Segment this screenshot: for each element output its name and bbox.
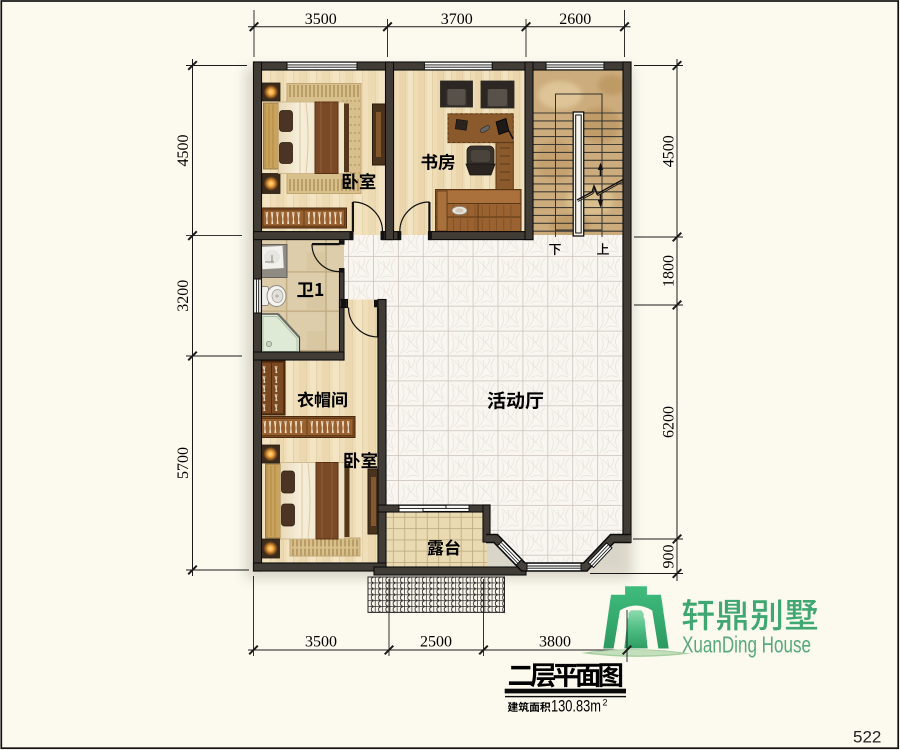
svg-text:3800: 3800 <box>539 633 571 650</box>
svg-text:2600: 2600 <box>559 11 591 28</box>
svg-text:2500: 2500 <box>420 633 452 650</box>
svg-text:900: 900 <box>661 545 678 569</box>
svg-text:3500: 3500 <box>305 11 337 28</box>
svg-text:3700: 3700 <box>441 11 473 28</box>
svg-text:5700: 5700 <box>175 447 192 479</box>
svg-text:522: 522 <box>853 728 881 747</box>
svg-text:XuanDing House: XuanDing House <box>682 632 811 658</box>
svg-text:3500: 3500 <box>305 633 337 650</box>
svg-text:4500: 4500 <box>661 135 678 167</box>
svg-text:4500: 4500 <box>175 135 192 167</box>
svg-text:1800: 1800 <box>661 255 678 287</box>
svg-text:6200: 6200 <box>661 406 678 438</box>
svg-text:2: 2 <box>603 698 608 708</box>
svg-text:130.83m: 130.83m <box>551 698 601 716</box>
svg-text:3200: 3200 <box>175 280 192 312</box>
